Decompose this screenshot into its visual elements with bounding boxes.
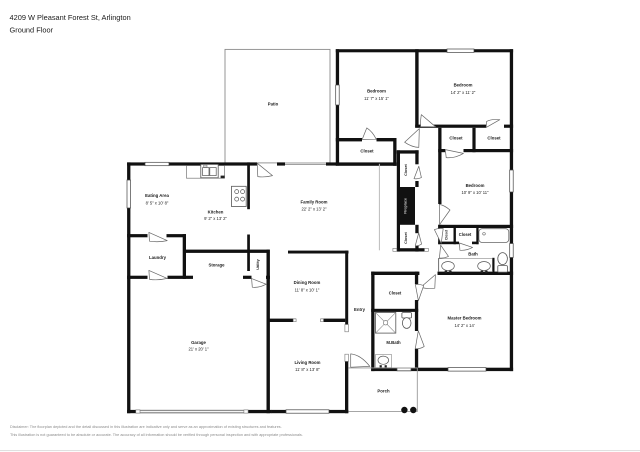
svg-text:Closet: Closet: [449, 136, 463, 141]
svg-text:14' 2" x 11' 2": 14' 2" x 11' 2": [451, 90, 476, 95]
svg-text:11' 8" x 10' 1": 11' 8" x 10' 1": [295, 288, 320, 293]
svg-text:Bath: Bath: [468, 252, 478, 257]
svg-text:Bedroom: Bedroom: [454, 83, 473, 88]
svg-text:Ground Floor: Ground Floor: [10, 25, 54, 34]
svg-text:Utility: Utility: [256, 258, 260, 269]
svg-text:22' 2" x 13' 2": 22' 2" x 13' 2": [301, 206, 327, 211]
svg-text:Master Bedroom: Master Bedroom: [448, 315, 482, 320]
svg-text:Entry: Entry: [354, 307, 366, 312]
svg-text:M.Bath: M.Bath: [386, 340, 401, 345]
svg-text:Garage: Garage: [191, 340, 206, 345]
svg-text:Eating Area: Eating Area: [145, 193, 169, 198]
svg-text:10' 9" x 10' 11": 10' 9" x 10' 11": [461, 190, 489, 195]
svg-text:Closet: Closet: [487, 136, 501, 141]
svg-text:Porch: Porch: [377, 389, 390, 394]
svg-text:8' 5" x 10' 8": 8' 5" x 10' 8": [146, 201, 169, 206]
svg-text:This illustration is not guara: This illustration is not guaranteed to b…: [10, 433, 303, 437]
svg-text:Bedroom: Bedroom: [367, 88, 386, 93]
svg-text:Closet: Closet: [459, 232, 472, 237]
svg-text:Dining Room: Dining Room: [294, 280, 321, 285]
svg-text:Closet: Closet: [389, 291, 402, 296]
svg-text:11' 8" x 13' 8": 11' 8" x 13' 8": [295, 367, 320, 372]
svg-text:Laundry: Laundry: [149, 255, 167, 260]
svg-text:Closet: Closet: [404, 163, 408, 175]
svg-text:Bedroom: Bedroom: [466, 183, 485, 188]
svg-text:Closet: Closet: [404, 231, 408, 243]
svg-text:Closet: Closet: [360, 149, 374, 154]
svg-text:Kitchen: Kitchen: [208, 209, 224, 214]
svg-text:11' 7" x 15' 1": 11' 7" x 15' 1": [364, 96, 389, 101]
svg-text:14' 2" x 14': 14' 2" x 14': [454, 323, 474, 328]
svg-text:Family Room: Family Room: [301, 199, 328, 204]
svg-text:Disclaimer: The floorplan depi: Disclaimer: The floorplan depicted and t…: [10, 425, 282, 429]
svg-text:21' x 20' 1": 21' x 20' 1": [188, 347, 209, 352]
svg-text:Patio: Patio: [268, 102, 279, 107]
svg-text:9' 2" x 13' 2": 9' 2" x 13' 2": [204, 216, 227, 221]
svg-text:4209 W Pleasant Forest St, Arl: 4209 W Pleasant Forest St, Arlington: [10, 13, 131, 22]
svg-text:Living Room: Living Room: [294, 360, 320, 365]
svg-text:Storage: Storage: [209, 263, 226, 268]
svg-text:Fireplace: Fireplace: [403, 198, 408, 214]
svg-text:Closet: Closet: [445, 229, 449, 240]
